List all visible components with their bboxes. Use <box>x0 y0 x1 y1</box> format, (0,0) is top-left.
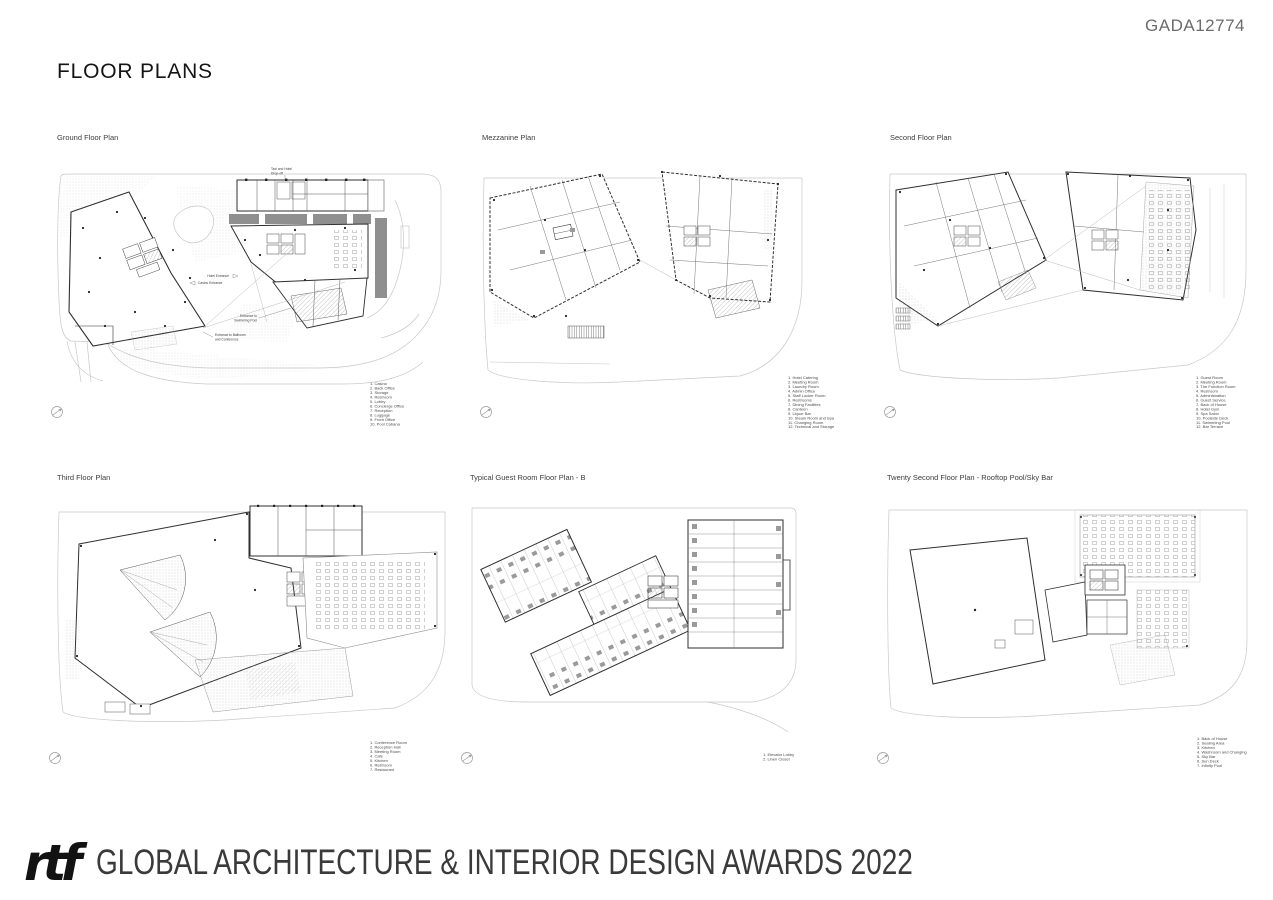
legend-item: 2. Linen Closet <box>763 757 843 761</box>
panel-third-floor: Third Floor Plan <box>45 470 465 775</box>
annotation-dropoff-line2: Drop-off <box>271 171 283 175</box>
panel-guest-room: Typical Guest Room Floor Plan - B <box>458 470 858 775</box>
panel-ground-floor: Ground Floor Plan <box>45 130 465 430</box>
legend-ground-floor: 1. Casino2. Back Office3. Storage4. Rest… <box>370 382 450 427</box>
legend-item: 7. Infinity Pool <box>1197 764 1273 768</box>
rtf-logo: rtf <box>24 838 84 888</box>
legend-second-floor: 1. Guest Room2. Meeting Room3. The Funct… <box>1196 376 1273 430</box>
page-title: FLOOR PLANS <box>57 60 213 84</box>
north-arrow-icon <box>462 753 473 764</box>
legend-third-floor: 1. Conference Room2. Reception Hall3. Me… <box>370 741 450 772</box>
north-arrow-icon <box>885 407 896 418</box>
panel-mezzanine: Mezzanine Plan <box>470 130 860 430</box>
annotation-pool-line1: Entrance to <box>240 314 257 318</box>
legend-twenty-second: 1. Back of House2. Seating Area3. Kitche… <box>1197 737 1273 768</box>
legend-item: 7. Restaurant <box>370 768 450 772</box>
legend-item: 10. Pool Cabana <box>370 422 450 426</box>
legend-guest-room: 1. Elevator Lobby2. Linen Closet <box>763 753 843 762</box>
sheet-code: GADA12774 <box>1145 16 1245 36</box>
guest-room-plan-drawing <box>458 470 858 775</box>
annotation-dropoff-line1: Taxi and Hotel <box>271 167 292 171</box>
footer: rtf GLOBAL ARCHITECTURE & INTERIOR DESIG… <box>24 838 1117 888</box>
twenty-second-floor-plan-drawing <box>875 470 1265 775</box>
north-arrow-icon <box>481 407 492 418</box>
third-floor-plan-drawing <box>45 470 465 775</box>
annotation-ballroom-line2: and Conference <box>215 337 239 341</box>
annotation-ballroom-line1: Entrance to Ballroom <box>215 333 246 337</box>
legend-item: 12. Bar Terrace <box>1196 425 1273 429</box>
footer-award-text: GLOBAL ARCHITECTURE & INTERIOR DESIGN AW… <box>96 843 913 883</box>
panel-twenty-second-floor: Twenty Second Floor Plan - Rooftop Pool/… <box>875 470 1265 775</box>
panel-second-floor: Second Floor Plan <box>878 130 1263 430</box>
north-arrow-icon <box>52 407 63 418</box>
legend-mezzanine: 1. Hotel Catering2. Meeting Room3. Laund… <box>788 376 868 430</box>
annotation-pool-line2: Swimming Pool <box>234 318 257 322</box>
annotation-casino-entrance: Casino Entrance <box>198 281 223 285</box>
north-arrow-icon <box>878 753 889 764</box>
annotation-hotel-entrance: Hotel Entrance <box>207 274 229 278</box>
legend-item: 12. Technical and Storage <box>788 425 868 429</box>
north-arrow-icon <box>50 753 61 764</box>
